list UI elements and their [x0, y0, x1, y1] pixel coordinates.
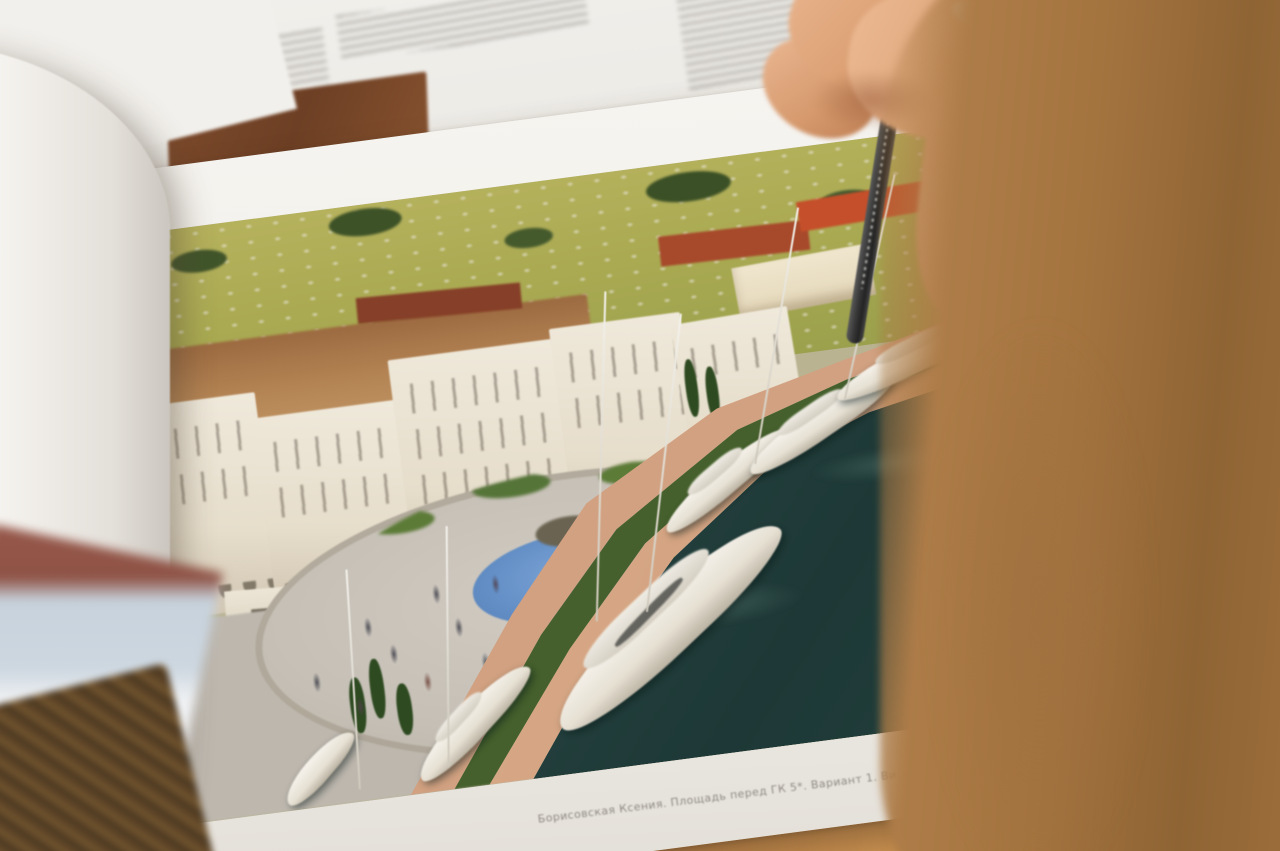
photo-stage: Борисовская Ксения. Площадь перед ГК 5*.…: [0, 0, 1280, 851]
foreground-hair-soft-edge: [940, 330, 1140, 851]
document-text-column: [336, 0, 590, 62]
